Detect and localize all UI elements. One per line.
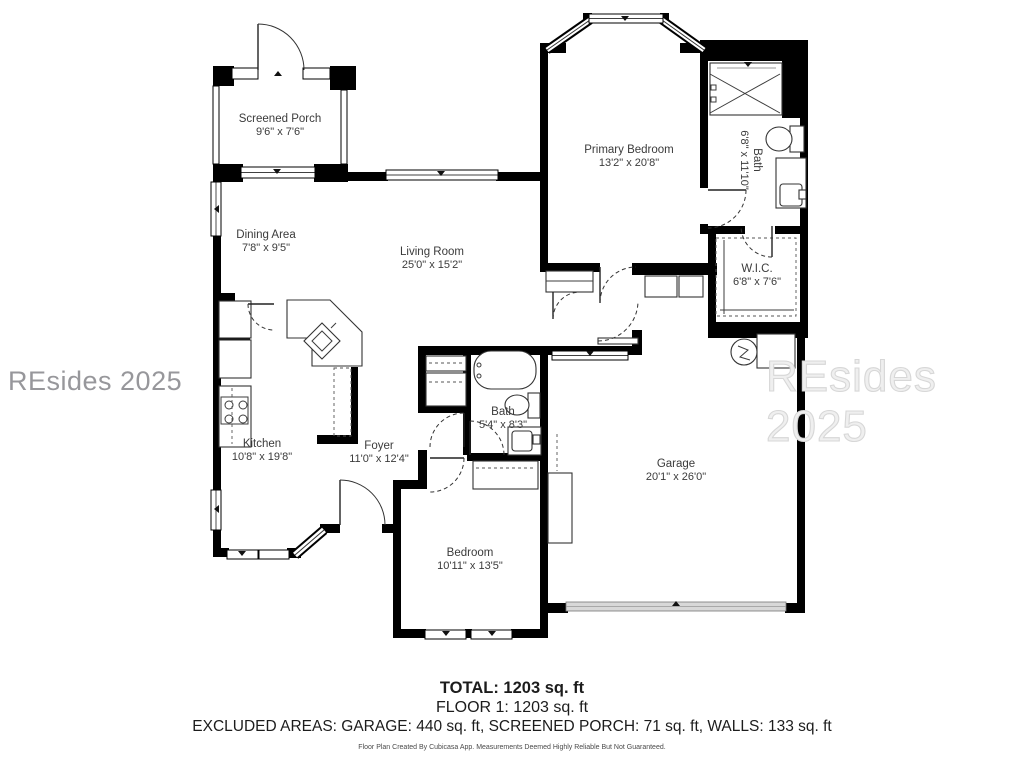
sink-fixture xyxy=(776,158,806,208)
watermark-left: REsides 2025 xyxy=(8,366,182,397)
room-label-primary-bedroom: Primary Bedroom 13'2" x 20'8" xyxy=(584,143,673,171)
room-name: Bedroom xyxy=(437,546,503,560)
room-name: Bath xyxy=(479,405,527,419)
screen-wall xyxy=(341,90,347,164)
room-dims: 10'11" x 13'5" xyxy=(437,560,503,574)
room-label-screened-porch: Screened Porch 9'6" x 7'6" xyxy=(239,112,321,140)
floor-plan-page: Screened Porch 9'6" x 7'6" Dining Area 7… xyxy=(0,0,1024,768)
room-name: Foyer xyxy=(349,439,409,453)
screen-wall xyxy=(213,86,219,164)
room-name: Dining Area xyxy=(236,228,295,242)
room-dims: 25'0" x 15'2" xyxy=(400,259,464,273)
room-name: Primary Bedroom xyxy=(584,143,673,157)
disclaimer-text: Floor Plan Created By Cubicasa App. Meas… xyxy=(0,744,1024,751)
window xyxy=(259,550,289,559)
shower-fixture xyxy=(710,63,782,115)
refrigerator-fixture xyxy=(219,301,251,338)
room-dims: 20'1" x 26'0" xyxy=(646,471,706,485)
room-name: Kitchen xyxy=(232,437,292,451)
total-area-text: TOTAL: 1203 sq. ft xyxy=(0,679,1024,698)
room-dims: 6'8" x 11'10" xyxy=(736,130,750,190)
room-name: W.I.C. xyxy=(733,262,781,276)
room-dims: 7'8" x 9'5" xyxy=(236,242,295,256)
room-dims: 9'6" x 7'6" xyxy=(239,126,321,140)
room-dims: 10'8" x 19'8" xyxy=(232,451,292,465)
room-label-dining: Dining Area 7'8" x 9'5" xyxy=(236,228,295,256)
room-dims: 11'0" x 12'4" xyxy=(349,453,409,467)
watermark-right: REsides 2025 xyxy=(766,352,1024,452)
toilet-fixture xyxy=(766,126,804,152)
room-name: Living Room xyxy=(400,245,464,259)
room-label-bath2: Bath 5'4" x 8'3" xyxy=(479,405,527,433)
room-dims: 13'2" x 20'8" xyxy=(584,157,673,171)
room-name: Screened Porch xyxy=(239,112,321,126)
floor-area-text: FLOOR 1: 1203 sq. ft xyxy=(0,699,1024,717)
excluded-areas-text: EXCLUDED AREAS: GARAGE: 440 sq. ft, SCRE… xyxy=(0,718,1024,736)
area-summary: TOTAL: 1203 sq. ft FLOOR 1: 1203 sq. ft … xyxy=(0,679,1024,751)
bathtub-fixture xyxy=(474,351,536,389)
entry-angled-window xyxy=(295,530,324,555)
room-label-kitchen: Kitchen 10'8" x 19'8" xyxy=(232,437,292,465)
window xyxy=(232,68,258,79)
closet-bedroom xyxy=(473,461,538,489)
window xyxy=(303,68,330,79)
room-label-foyer: Foyer 11'0" x 12'4" xyxy=(349,439,409,467)
garage-shelf xyxy=(548,434,572,543)
room-dims: 5'4" x 8'3" xyxy=(479,419,527,433)
kitchen-island xyxy=(287,300,362,366)
room-label-wic: W.I.C. 6'8" x 7'6" xyxy=(733,262,781,290)
room-label-bath-primary: Bath 6'8" x 11'10" xyxy=(736,130,764,190)
room-label-garage: Garage 20'1" x 26'0" xyxy=(646,457,706,485)
room-name: Bath xyxy=(750,130,764,190)
room-name: Garage xyxy=(646,457,706,471)
room-dims: 6'8" x 7'6" xyxy=(733,276,781,290)
room-label-living: Living Room 25'0" x 15'2" xyxy=(400,245,464,273)
room-label-bedroom: Bedroom 10'11" x 13'5" xyxy=(437,546,503,574)
closet-linen xyxy=(426,356,466,406)
